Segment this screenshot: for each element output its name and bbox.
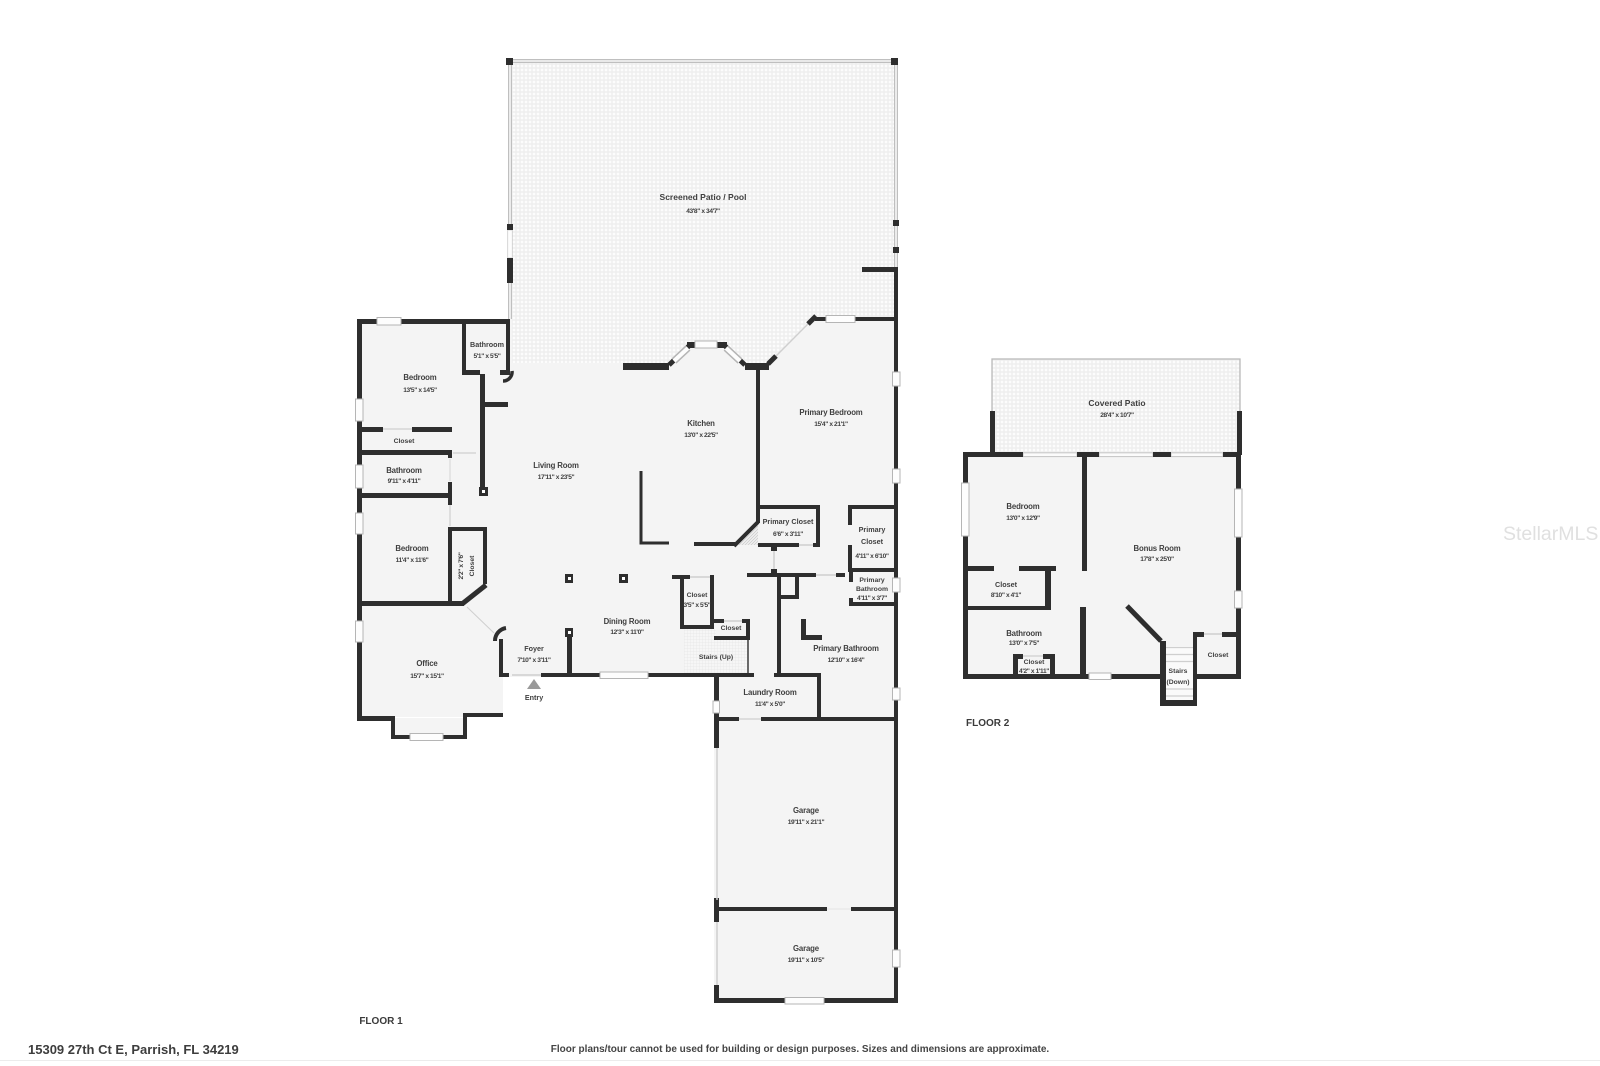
svg-text:Bedroom: Bedroom — [403, 373, 436, 382]
svg-text:(Down): (Down) — [1166, 679, 1189, 686]
svg-text:Laundry Room: Laundry Room — [743, 688, 796, 697]
svg-text:13'0" x 22'5": 13'0" x 22'5" — [684, 432, 718, 439]
svg-text:Garage: Garage — [793, 806, 820, 815]
svg-text:Closet: Closet — [861, 537, 884, 546]
svg-text:Closet: Closet — [469, 555, 476, 577]
svg-text:4'2" x 1'11": 4'2" x 1'11" — [1019, 668, 1049, 675]
svg-text:6'6" x 3'11": 6'6" x 3'11" — [773, 531, 803, 538]
svg-text:Bathroom: Bathroom — [1006, 629, 1042, 638]
svg-text:4'11" x 6'10": 4'11" x 6'10" — [855, 553, 888, 560]
svg-text:15309 27th Ct E, Parrish, FL 3: 15309 27th Ct E, Parrish, FL 34219 — [28, 1042, 239, 1057]
svg-text:15'7" x 15'1": 15'7" x 15'1" — [410, 673, 444, 680]
svg-text:28'4" x 10'7": 28'4" x 10'7" — [1100, 412, 1134, 419]
svg-text:Office: Office — [416, 659, 438, 668]
svg-text:Primary Closet: Primary Closet — [763, 517, 814, 526]
svg-text:Bedroom: Bedroom — [395, 544, 428, 553]
svg-text:Bathroom: Bathroom — [470, 340, 504, 349]
svg-text:Garage: Garage — [793, 944, 820, 953]
svg-text:Bedroom: Bedroom — [1006, 502, 1039, 511]
svg-text:Stairs (Up): Stairs (Up) — [699, 654, 733, 661]
svg-text:17'8" x 25'0": 17'8" x 25'0" — [1140, 556, 1174, 563]
svg-text:13'0" x 7'5": 13'0" x 7'5" — [1009, 640, 1040, 647]
svg-text:15'4" x 21'1": 15'4" x 21'1" — [814, 421, 848, 428]
svg-text:11'4" x 5'0": 11'4" x 5'0" — [755, 701, 785, 708]
svg-text:Closet: Closet — [721, 625, 743, 632]
svg-text:Closet: Closet — [687, 592, 709, 599]
svg-text:11'4" x 11'6": 11'4" x 11'6" — [396, 557, 429, 564]
svg-text:Entry: Entry — [525, 693, 543, 702]
svg-text:FLOOR 2: FLOOR 2 — [966, 718, 1010, 729]
svg-text:Primary: Primary — [859, 577, 885, 584]
svg-text:19'11" x 10'5": 19'11" x 10'5" — [788, 957, 825, 964]
svg-text:Closet: Closet — [394, 438, 416, 445]
svg-text:StellarMLS: StellarMLS — [1503, 523, 1598, 545]
svg-text:Foyer: Foyer — [524, 644, 544, 653]
svg-text:19'11" x 21'1": 19'11" x 21'1" — [788, 819, 825, 826]
svg-text:Bonus Room: Bonus Room — [1133, 544, 1180, 553]
svg-text:FLOOR 1: FLOOR 1 — [359, 1016, 403, 1027]
svg-text:Primary Bedroom: Primary Bedroom — [799, 408, 862, 417]
svg-text:Living Room: Living Room — [533, 461, 579, 470]
svg-text:13'5" x 14'5": 13'5" x 14'5" — [403, 387, 437, 394]
svg-text:Bathroom: Bathroom — [386, 466, 422, 475]
svg-text:43'8" x 34'7": 43'8" x 34'7" — [686, 208, 720, 215]
svg-text:Screened Patio / Pool: Screened Patio / Pool — [660, 192, 747, 202]
svg-text:Floor plans/tour cannot be use: Floor plans/tour cannot be used for buil… — [551, 1044, 1050, 1055]
svg-text:4'11" x 3'7": 4'11" x 3'7" — [857, 595, 887, 602]
svg-text:12'3" x 11'0": 12'3" x 11'0" — [610, 629, 643, 636]
svg-text:9'11" x 4'11": 9'11" x 4'11" — [388, 478, 421, 485]
svg-text:Dining Room: Dining Room — [604, 617, 651, 626]
svg-text:7'10" x 3'11": 7'10" x 3'11" — [517, 657, 550, 664]
svg-text:Primary Bathroom: Primary Bathroom — [813, 644, 879, 653]
svg-text:Stairs: Stairs — [1169, 668, 1188, 675]
svg-text:Closet: Closet — [995, 580, 1018, 589]
svg-text:8'10" x 4'1": 8'10" x 4'1" — [991, 592, 1022, 599]
svg-text:Bathroom: Bathroom — [856, 586, 888, 593]
svg-text:17'11" x 23'5": 17'11" x 23'5" — [538, 474, 575, 481]
svg-text:2'2" x 7'6": 2'2" x 7'6" — [458, 552, 465, 579]
svg-text:Closet: Closet — [1208, 652, 1230, 659]
svg-text:5'1" x 5'5": 5'1" x 5'5" — [474, 353, 501, 360]
svg-text:13'0" x 12'9": 13'0" x 12'9" — [1006, 515, 1040, 522]
svg-text:Primary: Primary — [859, 525, 886, 534]
svg-text:3'5" x 5'5": 3'5" x 5'5" — [684, 602, 711, 609]
svg-text:12'10" x 16'4": 12'10" x 16'4" — [828, 657, 865, 664]
svg-text:Closet: Closet — [1024, 659, 1046, 666]
svg-text:Kitchen: Kitchen — [687, 419, 715, 428]
svg-text:Covered Patio: Covered Patio — [1088, 398, 1145, 408]
